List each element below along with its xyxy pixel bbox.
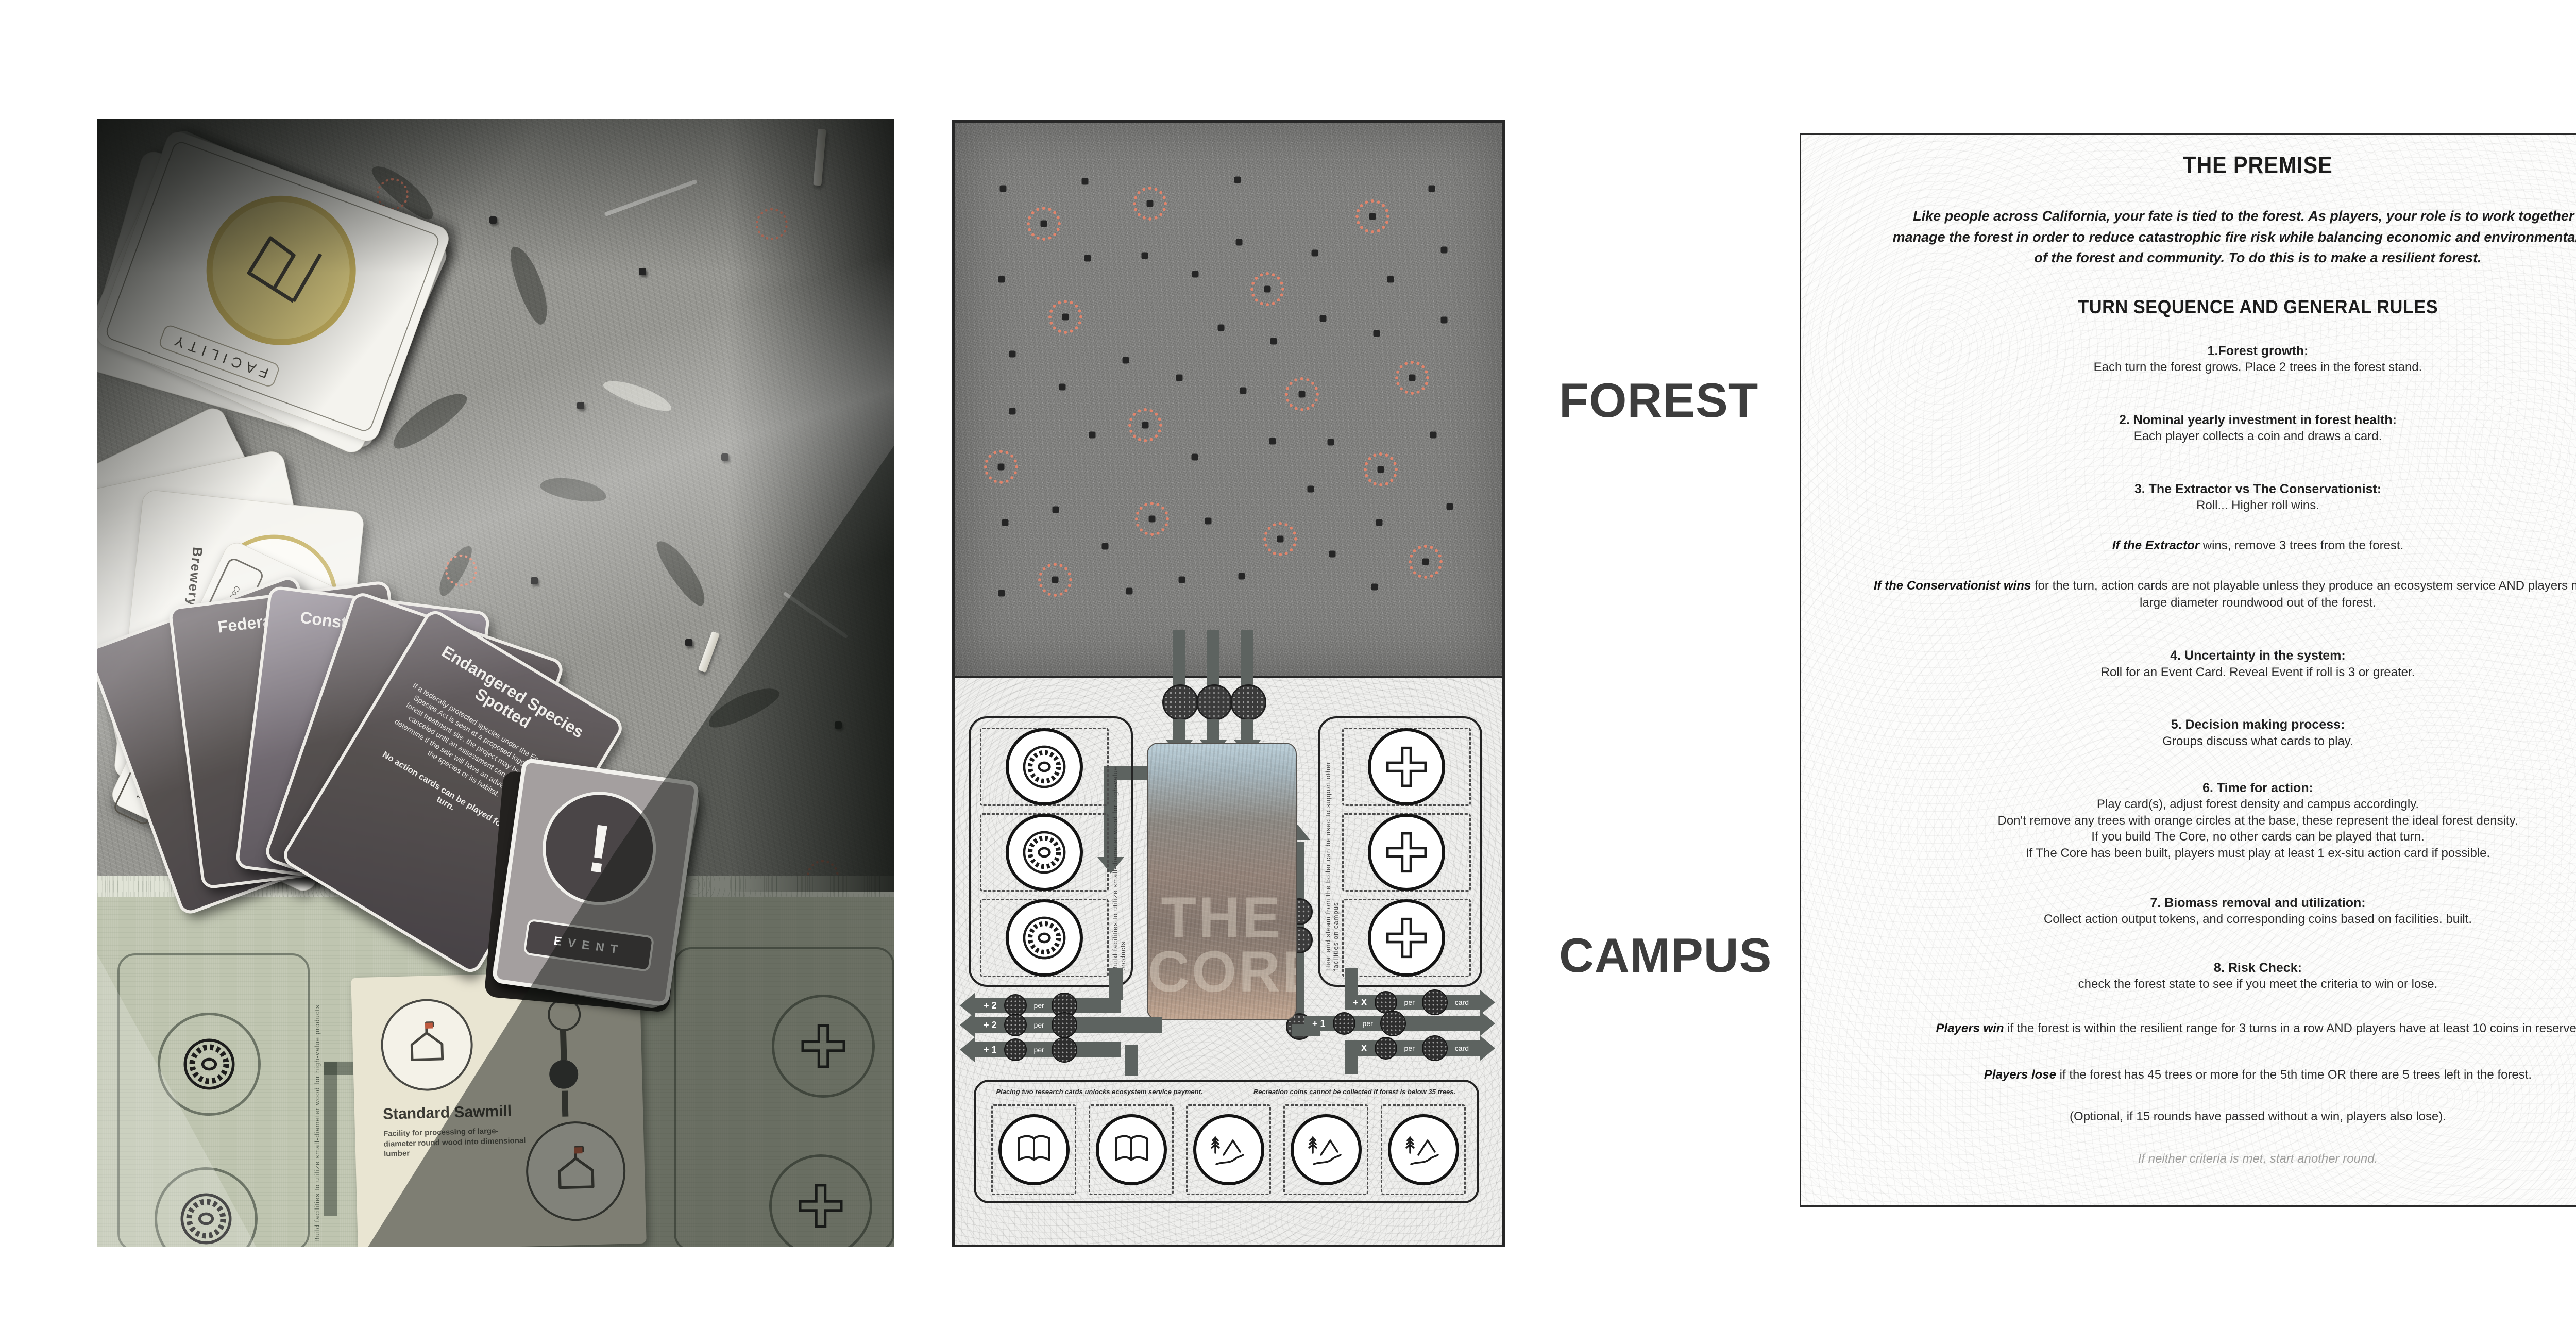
sawblade-slot-circle	[1006, 728, 1083, 805]
ideal-density-ring	[445, 555, 477, 586]
body-text: (Optional, if 15 rounds have passed with…	[2070, 1110, 2446, 1123]
facility-slot-stack	[980, 728, 1109, 977]
rule-body: Groups discuss what cards to play.	[1867, 733, 2576, 750]
conservationist-wins-line: If the Conservationist wins for the turn…	[1872, 578, 2576, 611]
tree-token	[1264, 285, 1270, 292]
tree-token	[1217, 325, 1224, 331]
roundwood-token	[1196, 684, 1232, 720]
facility-slot	[1342, 813, 1471, 892]
mountain-icon	[1403, 1129, 1444, 1170]
exclamation-glyph: !	[583, 809, 616, 889]
output-slot	[1089, 1104, 1174, 1195]
biomass-token	[1162, 684, 1198, 720]
tree-token	[639, 268, 646, 275]
payout-row-right: + X per card	[1345, 1035, 1495, 1061]
rule-body: check the forest state to see if you mee…	[1867, 976, 2576, 993]
payout-bar: + 1 per	[1304, 1016, 1480, 1031]
tree-token	[1142, 422, 1148, 428]
ideal-density-ring	[1027, 207, 1061, 241]
tree-token	[1084, 255, 1091, 261]
payout-bar: + 1 per	[975, 1042, 1121, 1057]
payout-bar: + 2 per	[975, 998, 1121, 1013]
tree-token	[1147, 200, 1154, 207]
payout-unit: per	[1034, 1001, 1044, 1010]
payout-unit: per	[1363, 1019, 1373, 1028]
sawblade-slot-circle	[1006, 899, 1083, 977]
payout-row-left: + 1 per	[960, 1037, 1121, 1063]
payout-row-right: + 1 per	[1304, 1011, 1495, 1036]
tree-token	[1428, 185, 1435, 192]
tree-token	[1148, 516, 1155, 523]
ideal-density-ring	[1135, 502, 1169, 536]
output-token	[1052, 1012, 1077, 1038]
output-token	[1422, 1035, 1448, 1061]
rule-heading: 8. Risk Check:	[1867, 960, 2576, 977]
rule-item-5: 5. Decision making process: Groups discu…	[1867, 716, 2576, 749]
ideal-density-ring	[1133, 187, 1167, 221]
tree-token	[1081, 178, 1088, 184]
body-text: if the forest has 45 trees or more for t…	[2056, 1068, 2532, 1082]
arrowhead-right	[1480, 1035, 1495, 1061]
rule-heading: 1.Forest growth:	[1867, 343, 2576, 360]
the-core-poster: THE CORE	[1147, 743, 1297, 1020]
rule-item-3: 3. The Extractor vs The Conservationist:…	[1867, 481, 2576, 514]
plus-slot-circle	[1368, 899, 1445, 977]
payout-amount: + 2	[984, 1000, 997, 1011]
tree-token	[1376, 519, 1382, 526]
chip-token	[1230, 684, 1266, 720]
sawblade-icon	[1021, 829, 1068, 876]
tree-token	[531, 577, 538, 584]
turn-sequence-title: TURN SEQUENCE AND GENERAL RULES	[2078, 296, 2438, 318]
tree-token	[1430, 432, 1437, 439]
printed-elbow	[324, 1062, 337, 1216]
flow-arrow	[1207, 719, 1219, 741]
tree-token	[1446, 503, 1453, 510]
elbow-connector	[1109, 968, 1123, 1000]
recreation-slot-circle	[1291, 1114, 1362, 1185]
tree-token	[998, 276, 1005, 282]
payout-unit: per	[1404, 1044, 1415, 1052]
event-label-pill: EVENT	[523, 918, 654, 972]
extractor-wins-line: If the Extractor wins, remove 3 trees fr…	[1872, 537, 2576, 554]
rule-body-line: Don't remove any trees with orange circl…	[1867, 813, 2576, 829]
left-column-caption: Build facilities to utilize small-diamet…	[1111, 734, 1127, 971]
ideal-density-ring	[1128, 408, 1162, 442]
payout-suffix: card	[1455, 998, 1469, 1006]
mountain-icon	[1306, 1129, 1347, 1170]
payout-unit: per	[1034, 1021, 1044, 1029]
tree-token	[1269, 438, 1276, 445]
plus-slot-circle	[1368, 728, 1445, 805]
ideal-density-ring	[1048, 300, 1082, 334]
tree-token	[1441, 317, 1448, 324]
tree-token	[1126, 587, 1133, 594]
sawmill-arrow	[562, 1090, 568, 1116]
tree-token	[1002, 519, 1008, 526]
rule-body-line: If you build The Core, no other cards ca…	[1867, 829, 2576, 845]
payout-suffix: card	[1455, 1044, 1469, 1052]
printed-vertical-caption: Build facilities to utilize small-diamet…	[313, 984, 321, 1242]
tree-token	[1239, 573, 1245, 579]
rule-item-2: 2. Nominal yearly investment in forest h…	[1867, 412, 2576, 445]
output-slot-row	[991, 1104, 1466, 1195]
research-slot-circle	[998, 1114, 1070, 1185]
rule-heading: 3. The Extractor vs The Conservationist:	[1867, 481, 2576, 498]
sawblade-icon	[181, 1036, 238, 1093]
tree-token	[1141, 252, 1148, 259]
coin-token	[1375, 1037, 1397, 1060]
coin-token	[1004, 1038, 1027, 1061]
printed-sawblade-circle	[158, 1013, 261, 1116]
flow-arrow	[1173, 719, 1185, 741]
plus-icon	[1383, 829, 1430, 876]
plus-icon	[1383, 914, 1430, 962]
ideal-density-ring	[1395, 361, 1429, 395]
core-title-line2: CORE	[1148, 945, 1296, 999]
rule-body: Collect action output tokens, and corres…	[1867, 911, 2576, 928]
event-card: ! EVENT	[492, 758, 700, 1007]
elbow-connector	[1345, 1043, 1358, 1074]
flow-arrow	[1241, 719, 1253, 741]
tree-token	[1298, 391, 1305, 397]
tree-token	[1176, 374, 1182, 381]
players-win-line: Players win if the forest is within the …	[1872, 1020, 2576, 1037]
tree-token	[1277, 535, 1284, 542]
tree-token	[1192, 271, 1198, 278]
payout-bar: + X per card	[1345, 995, 1480, 1010]
facility-slot	[1342, 899, 1471, 977]
facility-slot-stack	[1342, 728, 1471, 977]
core-title-line1: THE	[1148, 891, 1296, 945]
tree-token	[1329, 550, 1336, 557]
tree-token	[1205, 517, 1212, 524]
payout-bar: + X per card	[1345, 1040, 1480, 1056]
output-slot	[1381, 1104, 1466, 1195]
campus-label: CAMPUS	[1559, 928, 1772, 983]
tree-token	[1102, 543, 1109, 549]
rule-item-4: 4. Uncertainty in the system: Roll for a…	[1867, 647, 2576, 680]
flag-icon	[232, 223, 330, 317]
payout-unit: per	[1034, 1046, 1044, 1054]
plus-icon	[1383, 743, 1430, 791]
building-icon	[544, 1139, 607, 1203]
facility-column-left: Build facilities to utilize small-diamet…	[969, 716, 1133, 987]
rule-heading: 6. Time for action:	[1867, 780, 2576, 797]
rule-body-line: Play card(s), adjust forest density and …	[1867, 796, 2576, 813]
ideal-density-ring	[1364, 452, 1398, 486]
players-lose-line: Players lose if the forest has 45 trees …	[1872, 1067, 2576, 1083]
lead-text: Players win	[1936, 1021, 2004, 1035]
body-text: wins, remove 3 trees from the forest.	[2199, 539, 2403, 552]
ideal-density-ring	[1263, 522, 1297, 556]
sawblade-slot-circle	[1006, 814, 1083, 891]
rule-heading: 4. Uncertainty in the system:	[1867, 647, 2576, 664]
tree-token	[998, 590, 1005, 597]
tree-token	[1409, 374, 1415, 381]
tree-token	[577, 402, 584, 409]
payout-row-left: + 2 per	[960, 1012, 1162, 1038]
rule-item-8: 8. Risk Check: check the forest state to…	[1867, 960, 2576, 993]
ideal-density-ring	[1038, 563, 1072, 597]
lead-text: If the Extractor	[2112, 539, 2199, 552]
event-label: EVENT	[553, 933, 624, 957]
house-icon	[398, 1016, 456, 1074]
premise-text: Like people across California, your fate…	[1890, 206, 2576, 268]
coin-token	[1333, 1012, 1355, 1035]
tree-token	[1320, 315, 1327, 322]
research-slot-circle	[1096, 1114, 1167, 1185]
ideal-density-ring	[984, 450, 1018, 484]
rule-item-7: 7. Biomass removal and utilization: Coll…	[1867, 895, 2576, 928]
rule-body: Roll for an Event Card. Reveal Event if …	[1867, 664, 2576, 681]
rule-item-1: 1.Forest growth: Each turn the forest gr…	[1867, 343, 2576, 376]
mountain-icon	[1208, 1129, 1249, 1170]
flow-arrow	[1173, 630, 1185, 687]
tree-token	[1191, 454, 1198, 461]
tree-token	[1373, 330, 1380, 337]
elbow-connector	[1125, 1045, 1138, 1076]
tree-token	[835, 721, 842, 729]
body-text: for the turn, action cards are not playa…	[2031, 579, 2576, 609]
tree-token	[1378, 466, 1384, 473]
tree-token	[1235, 239, 1242, 245]
event-alert-circle: !	[535, 784, 663, 912]
tree-token	[1240, 388, 1247, 394]
tree-token	[1009, 350, 1015, 357]
output-token	[1052, 1037, 1077, 1063]
payout-amount: + 2	[984, 1020, 997, 1031]
tree-token	[1270, 338, 1277, 344]
sawmill-arrow	[560, 1029, 567, 1060]
rule-body: Each turn the forest grows. Place 2 tree…	[1867, 359, 2576, 376]
payout-unit: per	[1404, 998, 1415, 1006]
tree-token	[1052, 507, 1059, 513]
arrowhead-left	[960, 1037, 975, 1063]
output-slot	[991, 1104, 1076, 1195]
arrowhead-right	[1480, 1011, 1495, 1036]
tree-token	[998, 464, 1005, 471]
tree-token	[1009, 408, 1015, 415]
output-token	[1380, 1011, 1406, 1036]
optional-rule-line: (Optional, if 15 rounds have passed with…	[1872, 1108, 2576, 1125]
tree-token	[1059, 383, 1066, 390]
outputs-caption-right: Recreation coins cannot be collected if …	[1244, 1088, 1465, 1096]
flow-arrow	[1241, 630, 1253, 687]
rule-body: Each player collects a coin and draws a …	[1867, 428, 2576, 445]
sawblade-icon	[178, 1190, 234, 1247]
recreation-slot-circle	[1193, 1114, 1264, 1185]
sawmill-illustration-circle	[380, 998, 474, 1092]
facility-slot	[980, 813, 1109, 892]
body-text: if the forest is within the resilient ra…	[2004, 1021, 2576, 1035]
sawmill-building-circle	[525, 1120, 627, 1222]
plus-icon	[798, 1020, 849, 1072]
coin-token	[1004, 1014, 1027, 1036]
tree-token	[721, 453, 728, 461]
tree-token	[1371, 584, 1378, 591]
output-slot	[1186, 1104, 1271, 1195]
facility-slot	[1342, 728, 1471, 806]
tree-token	[1062, 313, 1069, 320]
digital-board-panel: Build facilities to utilize small-diamet…	[952, 120, 1505, 1247]
sawmill-title: Standard Sawmill	[383, 1102, 512, 1123]
action-outputs-panel: Placing two research cards unlocks ecosy…	[974, 1080, 1479, 1203]
tree-token	[1234, 176, 1241, 183]
book-icon	[1111, 1129, 1152, 1170]
facility-column-right: Heat and steam from the boiler can be us…	[1318, 716, 1482, 987]
ideal-density-ring	[756, 208, 788, 240]
sawblade-icon	[1021, 914, 1068, 962]
flow-arrow	[1207, 630, 1219, 687]
tree-token	[1089, 432, 1095, 439]
tree-token	[1179, 577, 1185, 583]
tree-token	[1422, 558, 1429, 565]
ideal-density-ring	[1250, 272, 1284, 306]
rules-footer: If neither criteria is met, start anothe…	[1867, 1152, 2576, 1166]
tree-token	[1052, 577, 1058, 583]
ideal-density-ring	[1409, 545, 1443, 579]
page: Build facilities to utilize small-diamet…	[0, 0, 2576, 1327]
payout-amount: + X	[1353, 997, 1367, 1008]
lead-text: Players lose	[1984, 1068, 2056, 1082]
tree-token	[999, 185, 1006, 192]
payout-amount: + 1	[984, 1045, 997, 1055]
plus-icon	[795, 1180, 846, 1232]
forest-stand-area	[955, 123, 1502, 678]
standard-sawmill-card: Standard Sawmill Facility for processing…	[351, 970, 647, 1247]
sawblade-icon	[1021, 743, 1068, 791]
rules-panel: THE PREMISE Like people across Californi…	[1800, 133, 2576, 1207]
tree-token	[489, 216, 497, 224]
arrowhead-left	[960, 1012, 975, 1038]
photo-panel: Build facilities to utilize small-diamet…	[97, 119, 894, 1247]
tree-token	[1041, 221, 1047, 227]
payout-bar: + 2 per	[975, 1017, 1162, 1033]
output-slot	[1283, 1104, 1368, 1195]
tree-token	[1441, 246, 1448, 253]
rule-item-6: 6. Time for action: Play card(s), adjust…	[1867, 780, 2576, 862]
book-icon	[1013, 1129, 1055, 1170]
printed-plus-circle	[772, 995, 875, 1098]
tree-token	[1312, 250, 1318, 257]
tree-token	[1328, 439, 1334, 446]
facility-slot	[980, 899, 1109, 977]
rule-body-line: If The Core has been built, players must…	[1867, 845, 2576, 862]
ideal-density-ring	[1285, 377, 1319, 411]
tree-token	[1369, 213, 1376, 220]
ideal-density-ring	[1355, 199, 1389, 233]
rule-body: Roll... Higher roll wins.	[1867, 497, 2576, 514]
plus-slot-circle	[1368, 814, 1445, 891]
tree-token	[1122, 357, 1129, 364]
rule-heading: 5. Decision making process:	[1867, 716, 2576, 733]
right-column-caption: Heat and steam from the boiler can be us…	[1324, 734, 1340, 971]
tree-token	[685, 639, 692, 646]
lead-text: If the Conservationist wins	[1874, 579, 2031, 593]
recreation-slot-circle	[1388, 1114, 1459, 1185]
forest-label: FOREST	[1559, 373, 1758, 428]
premise-title: THE PREMISE	[2183, 151, 2333, 179]
sawmill-subtitle: Facility for processing of large-diamete…	[383, 1126, 528, 1160]
facility-slot	[980, 728, 1109, 806]
sawmill-output-token	[549, 1060, 578, 1089]
outputs-caption-left: Placing two research cards unlocks ecosy…	[991, 1088, 1208, 1096]
tree-token	[1307, 486, 1314, 493]
tree-token	[1387, 276, 1394, 282]
payout-amount: + 1	[1312, 1018, 1326, 1029]
rule-heading: 7. Biomass removal and utilization:	[1867, 895, 2576, 912]
rule-heading: 2. Nominal yearly investment in forest h…	[1867, 412, 2576, 429]
